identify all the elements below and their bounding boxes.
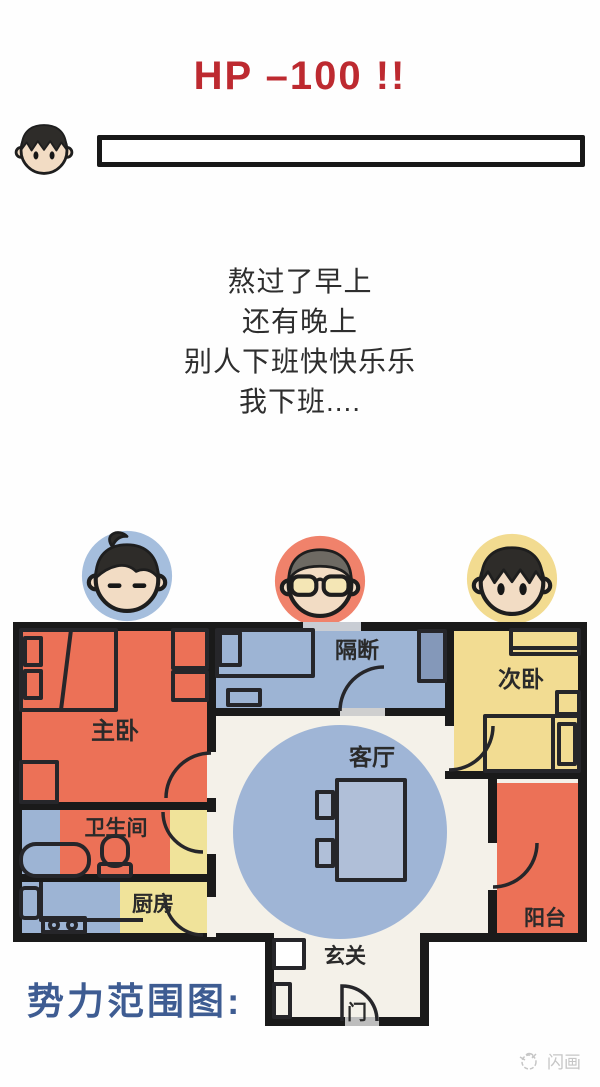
shoe-cabinet xyxy=(274,940,304,968)
hp-title: HP –100 !! xyxy=(0,54,600,99)
room-partition xyxy=(216,631,445,708)
chair xyxy=(317,792,333,818)
shanhua-logo-icon xyxy=(516,1051,542,1071)
avatar-roommate-red xyxy=(274,535,366,627)
poem-line: 别人下班快快乐乐 xyxy=(0,342,600,382)
room-label-kitchen: 厨房 xyxy=(132,892,174,916)
room-label-partition: 隔断 xyxy=(335,638,379,663)
room-label-second: 次卧 xyxy=(498,666,544,692)
chair xyxy=(317,840,333,866)
watermark-label: 闪画 xyxy=(547,1048,581,1073)
avatar-roommate-yellow xyxy=(466,533,558,625)
room-label-master: 主卧 xyxy=(91,718,139,745)
caption-territory-map: 势力范围图: xyxy=(27,971,242,1025)
closet-partition xyxy=(419,631,445,681)
table-living-room xyxy=(337,780,405,880)
room-label-balcony: 阳台 xyxy=(524,906,566,930)
hp-bar xyxy=(97,135,585,167)
poem-line: 我下班.... xyxy=(0,382,600,422)
avatar-roommate-blue xyxy=(81,530,173,622)
room-label-door: 门 xyxy=(347,1000,367,1024)
poem-line: 熬过了早上 xyxy=(0,262,600,302)
room-label-living: 客厅 xyxy=(349,744,395,770)
boy-face-icon xyxy=(13,117,75,179)
watermark: 闪画 xyxy=(516,1048,581,1073)
poem-text: 熬过了早上 还有晚上 别人下班快快乐乐 我下班.... xyxy=(0,262,600,422)
room-label-bathroom: 卫生间 xyxy=(85,816,148,840)
poem-line: 还有晚上 xyxy=(0,302,600,342)
room-label-hall: 玄关 xyxy=(324,944,366,968)
